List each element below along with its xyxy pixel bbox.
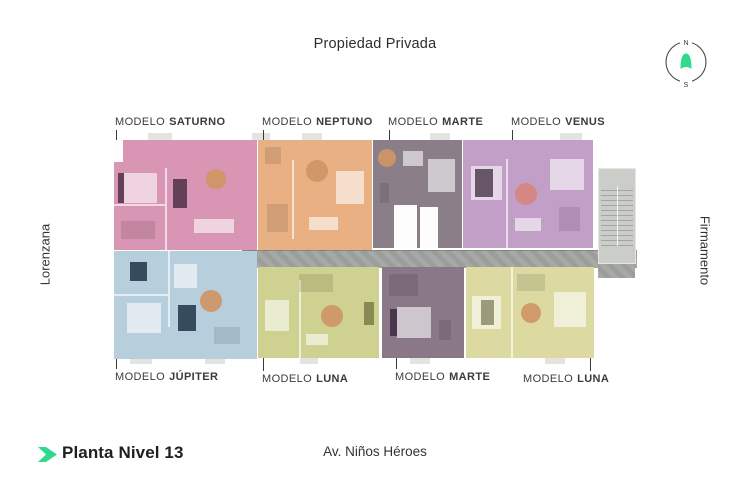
label-modelo-jupiter: MODELOJÚPITER — [115, 371, 218, 383]
label-modelo-neptuno: MODELONEPTUNO — [262, 116, 373, 128]
stair-treads-icon — [601, 186, 633, 246]
street-label-left: Lorenzana — [38, 185, 53, 325]
compass-icon: N S — [658, 34, 714, 90]
label-modelo-venus: MODELOVENUS — [511, 116, 605, 128]
unit-neptuno[interactable] — [258, 140, 372, 250]
corridor — [242, 250, 637, 268]
label-modelo-luna-left: MODELOLUNA — [262, 373, 348, 385]
brand-chevron-icon — [38, 447, 57, 462]
label-modelo-luna-right: MODELOLUNA — [523, 373, 609, 385]
compass-needle-icon — [681, 54, 692, 70]
label-modelo-marte-bottom: MODELOMARTE — [395, 371, 490, 383]
unit-venus[interactable] — [463, 140, 593, 248]
unit-luna-left[interactable] — [258, 267, 379, 358]
unit-saturno[interactable] — [114, 140, 257, 250]
floorplan-page: Propiedad Privada Lorenzana Firmamento A… — [0, 0, 750, 500]
compass-north-label: N — [683, 40, 688, 47]
unit-luna-right[interactable] — [466, 267, 594, 358]
label-modelo-marte-top: MODELOMARTE — [388, 116, 483, 128]
plan-level-title: Planta Nivel 13 — [62, 443, 184, 463]
label-modelo-saturno: MODELOSATURNO — [115, 116, 225, 128]
street-label-right: Firmamento — [698, 181, 713, 321]
unit-marte-bottom[interactable] — [382, 267, 464, 358]
unit-marte-top[interactable] — [373, 140, 462, 248]
compass-south-label: S — [684, 82, 689, 89]
private-property-label: Propiedad Privada — [0, 36, 750, 52]
unit-jupiter[interactable] — [114, 251, 257, 359]
corridor-landing — [598, 264, 635, 278]
stairwell — [598, 168, 636, 264]
